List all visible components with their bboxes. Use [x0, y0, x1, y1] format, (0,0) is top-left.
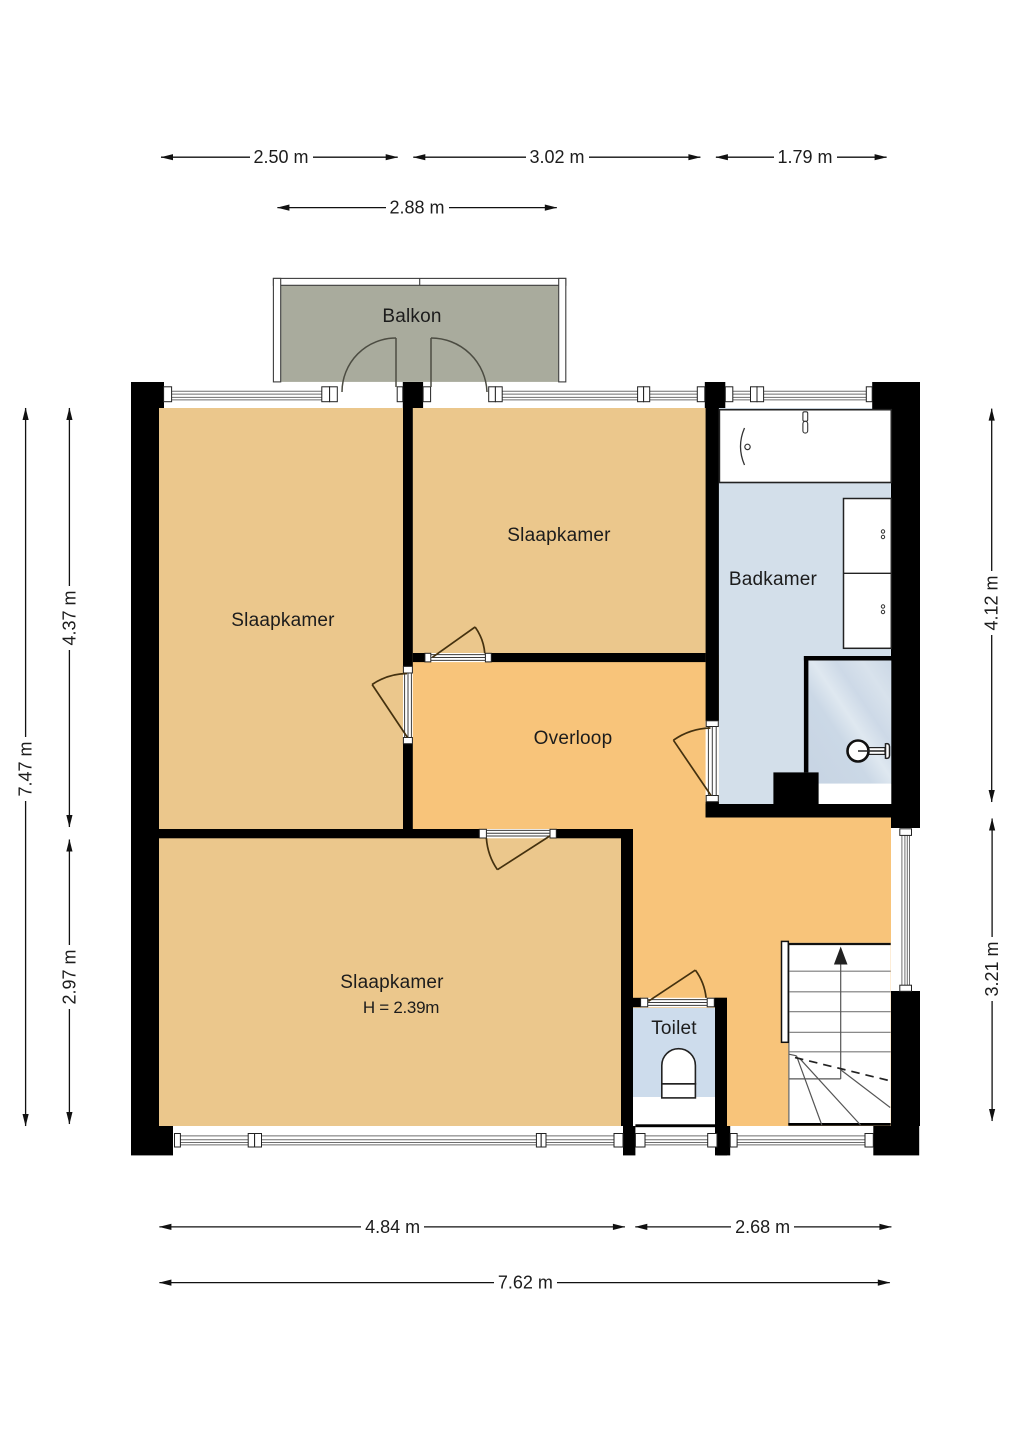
svg-text:Overloop: Overloop [534, 728, 613, 749]
svg-text:2.88 m: 2.88 m [389, 198, 444, 218]
svg-text:Slaapkamer: Slaapkamer [507, 525, 611, 546]
svg-text:7.62 m: 7.62 m [498, 1273, 553, 1293]
svg-text:Slaapkamer: Slaapkamer [231, 610, 335, 631]
svg-text:Balkon: Balkon [382, 306, 441, 327]
svg-text:4.37 m: 4.37 m [59, 590, 79, 645]
svg-text:Slaapkamer: Slaapkamer [340, 972, 444, 993]
svg-text:4.84 m: 4.84 m [365, 1217, 420, 1237]
svg-text:3.02 m: 3.02 m [529, 147, 584, 167]
svg-text:H = 2.39m: H = 2.39m [363, 998, 439, 1017]
svg-text:1.79 m: 1.79 m [777, 147, 832, 167]
svg-text:7.47 m: 7.47 m [16, 741, 36, 796]
svg-text:4.12 m: 4.12 m [982, 575, 1002, 630]
svg-text:2.97 m: 2.97 m [59, 949, 79, 1004]
svg-text:Badkamer: Badkamer [729, 569, 818, 590]
svg-text:Toilet: Toilet [651, 1018, 697, 1039]
svg-text:3.21 m: 3.21 m [982, 941, 1002, 996]
svg-text:2.68 m: 2.68 m [735, 1217, 790, 1237]
svg-text:2.50 m: 2.50 m [253, 147, 308, 167]
